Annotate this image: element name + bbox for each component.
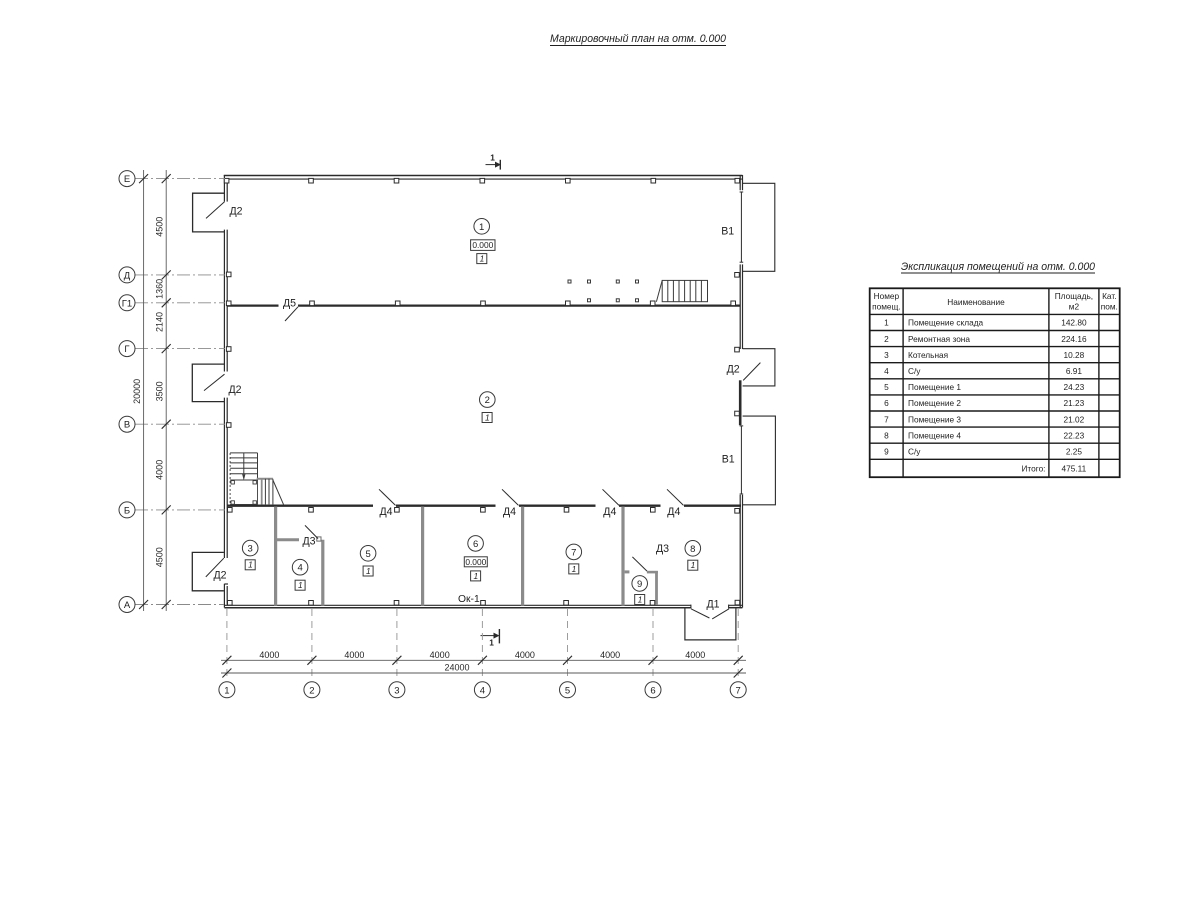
svg-text:4000: 4000	[259, 650, 279, 660]
svg-text:3500: 3500	[154, 381, 164, 401]
svg-text:Ремонтная зона: Ремонтная зона	[908, 334, 970, 344]
svg-text:Д2: Д2	[727, 364, 740, 376]
svg-text:5: 5	[365, 549, 370, 560]
svg-text:Помещение 1: Помещение 1	[908, 382, 961, 392]
svg-text:Помещение склада: Помещение склада	[908, 318, 984, 328]
svg-text:6: 6	[650, 685, 655, 696]
svg-text:4000: 4000	[430, 650, 450, 660]
svg-text:3: 3	[248, 544, 253, 555]
svg-text:6.91: 6.91	[1066, 366, 1083, 376]
svg-text:Д2: Д2	[229, 384, 242, 396]
svg-text:21.23: 21.23	[1064, 398, 1085, 408]
svg-text:4000: 4000	[600, 650, 620, 660]
svg-text:24000: 24000	[444, 663, 469, 673]
svg-text:7: 7	[884, 414, 889, 424]
svg-text:1: 1	[638, 594, 643, 604]
svg-text:1: 1	[224, 685, 229, 696]
svg-text:Б: Б	[124, 505, 130, 516]
svg-text:8: 8	[690, 544, 695, 555]
svg-text:Д1: Д1	[707, 599, 720, 611]
svg-text:4: 4	[297, 563, 302, 574]
svg-text:4000: 4000	[344, 650, 364, 660]
svg-text:4: 4	[884, 366, 889, 376]
svg-text:Д: Д	[124, 270, 131, 281]
svg-text:Д2: Д2	[214, 569, 227, 581]
svg-text:Г1: Г1	[122, 298, 132, 309]
svg-text:2.25: 2.25	[1066, 447, 1083, 457]
svg-text:Номер: Номер	[874, 291, 900, 301]
svg-text:1: 1	[248, 560, 253, 570]
svg-text:4500: 4500	[154, 547, 164, 567]
svg-text:9: 9	[637, 579, 642, 590]
svg-text:1: 1	[479, 222, 484, 233]
svg-text:1360: 1360	[154, 279, 164, 299]
svg-text:С/у: С/у	[908, 447, 921, 457]
svg-text:1: 1	[485, 412, 490, 422]
svg-text:В1: В1	[721, 225, 734, 237]
svg-text:1: 1	[366, 566, 371, 576]
svg-text:2: 2	[309, 685, 314, 696]
svg-text:Д4: Д4	[380, 506, 393, 518]
svg-text:0.000: 0.000	[465, 557, 486, 567]
svg-text:4000: 4000	[515, 650, 535, 660]
svg-text:Помещение 3: Помещение 3	[908, 414, 961, 424]
svg-text:7: 7	[736, 685, 741, 696]
svg-text:6: 6	[884, 398, 889, 408]
svg-text:Помещение 4: Помещение 4	[908, 430, 961, 440]
svg-text:24.23: 24.23	[1064, 382, 1085, 392]
svg-text:В: В	[124, 420, 130, 431]
svg-text:1: 1	[489, 637, 494, 647]
svg-text:Д2: Д2	[230, 206, 243, 218]
svg-text:Д5: Д5	[283, 297, 296, 309]
svg-text:21.02: 21.02	[1064, 414, 1085, 424]
svg-text:А: А	[124, 600, 131, 611]
svg-text:224.16: 224.16	[1061, 334, 1087, 344]
svg-text:1: 1	[473, 571, 478, 581]
svg-text:10.28: 10.28	[1064, 350, 1085, 360]
svg-text:8: 8	[884, 430, 889, 440]
svg-text:С/у: С/у	[908, 366, 921, 376]
svg-text:1: 1	[298, 580, 303, 590]
svg-text:Д3: Д3	[303, 536, 316, 548]
svg-text:4000: 4000	[154, 460, 164, 480]
svg-text:Итого:: Итого:	[1021, 464, 1045, 474]
svg-text:Г: Г	[124, 344, 129, 355]
svg-text:22.23: 22.23	[1064, 430, 1085, 440]
svg-text:1: 1	[480, 254, 485, 264]
svg-text:5: 5	[884, 382, 889, 392]
svg-text:4000: 4000	[685, 650, 705, 660]
svg-text:1: 1	[572, 564, 577, 574]
svg-text:3: 3	[884, 350, 889, 360]
svg-text:2: 2	[884, 334, 889, 344]
svg-text:Помещение 2: Помещение 2	[908, 398, 961, 408]
svg-text:3: 3	[394, 685, 399, 696]
svg-text:0.000: 0.000	[472, 240, 493, 250]
svg-text:пом.: пом.	[1101, 301, 1118, 311]
svg-text:2: 2	[485, 395, 490, 406]
svg-text:20000: 20000	[132, 379, 142, 404]
svg-text:7: 7	[571, 547, 576, 558]
svg-text:Наименование: Наименование	[947, 297, 1005, 307]
svg-text:Д4: Д4	[603, 506, 616, 518]
svg-text:Кат.: Кат.	[1102, 291, 1116, 301]
svg-text:6: 6	[473, 539, 478, 550]
svg-text:Экспликация помещений на отм.: Экспликация помещений на отм. 0.000	[901, 261, 1096, 273]
svg-text:1: 1	[884, 318, 889, 328]
svg-text:В1: В1	[722, 453, 735, 465]
svg-text:1: 1	[490, 152, 495, 162]
svg-text:4500: 4500	[154, 217, 164, 237]
svg-text:4: 4	[480, 685, 485, 696]
svg-text:Е: Е	[124, 174, 130, 185]
svg-text:Д4: Д4	[667, 506, 680, 518]
svg-text:2140: 2140	[154, 312, 164, 332]
svg-text:Д3: Д3	[656, 543, 669, 555]
svg-text:Д4: Д4	[503, 506, 516, 518]
svg-text:9: 9	[884, 447, 889, 457]
svg-text:Котельная: Котельная	[908, 350, 948, 360]
svg-text:Маркировочный план на отм. 0.0: Маркировочный план на отм. 0.000	[550, 33, 727, 45]
svg-text:Площадь,: Площадь,	[1055, 291, 1093, 301]
svg-text:1: 1	[691, 560, 696, 570]
svg-text:5: 5	[565, 685, 570, 696]
svg-text:Ок-1: Ок-1	[458, 594, 480, 605]
svg-text:142.80: 142.80	[1061, 318, 1087, 328]
svg-text:м2: м2	[1069, 301, 1080, 311]
svg-text:475.11: 475.11	[1062, 464, 1087, 474]
svg-text:помещ.: помещ.	[872, 301, 901, 311]
